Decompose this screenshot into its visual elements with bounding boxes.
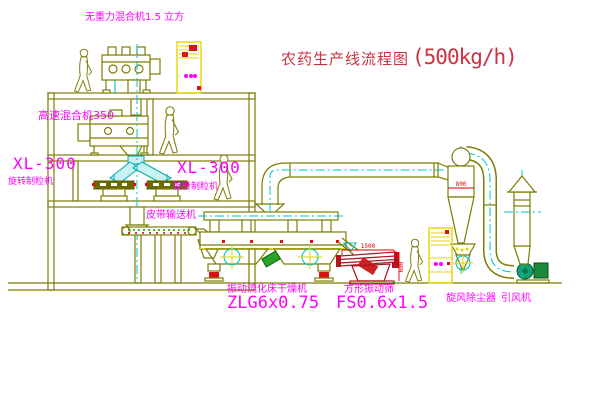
control-cabinet-2 bbox=[429, 228, 452, 283]
title-chinese: 农药生产线流程图 bbox=[281, 48, 409, 69]
gravity-free-mixer bbox=[102, 47, 160, 115]
cyclone-dimension: 800 bbox=[456, 181, 467, 188]
vibrating-screen: 1500 600 bbox=[336, 238, 405, 284]
label-fan: 引风机 bbox=[501, 294, 531, 304]
label-belt-conveyor: 皮带输送机 bbox=[146, 211, 196, 221]
dryer-exhaust-duct bbox=[256, 163, 452, 214]
worker-roof bbox=[75, 49, 92, 92]
cad-process-flow-drawing: 800 bbox=[0, 0, 600, 403]
label-dryer-model: ZLG6x0.75 bbox=[227, 295, 319, 312]
worker-ground bbox=[406, 239, 423, 282]
worker-level2 bbox=[160, 107, 179, 154]
drawing-title: 农药生产线流程图 (500kg/h) bbox=[281, 45, 517, 69]
label-granulator-name-right: 旋转制粒机 bbox=[173, 183, 218, 192]
y-chute bbox=[110, 156, 171, 183]
label-screen-model: FS0.6x1.5 bbox=[336, 295, 428, 312]
fluid-bed-dryer bbox=[198, 212, 358, 281]
screen-height-dimension: 600 bbox=[398, 261, 405, 272]
screen-length-dimension: 1500 bbox=[361, 243, 376, 250]
title-capacity: (500kg/h) bbox=[412, 45, 517, 69]
granulator-left bbox=[92, 174, 136, 201]
label-high-speed-mixer: 高速混合机350 bbox=[38, 110, 114, 121]
control-cabinet-1 bbox=[177, 42, 201, 93]
label-cyclone: 旋风除尘器 bbox=[446, 294, 496, 304]
label-granulator-model-right: XL-300 bbox=[177, 160, 241, 176]
label-granulator-name-left: 旋转制粒机 bbox=[8, 178, 53, 187]
label-granulator-model-left: XL-300 bbox=[13, 156, 77, 172]
label-gravity-mixer: 无重力混合机1.5 立方 bbox=[85, 13, 184, 23]
